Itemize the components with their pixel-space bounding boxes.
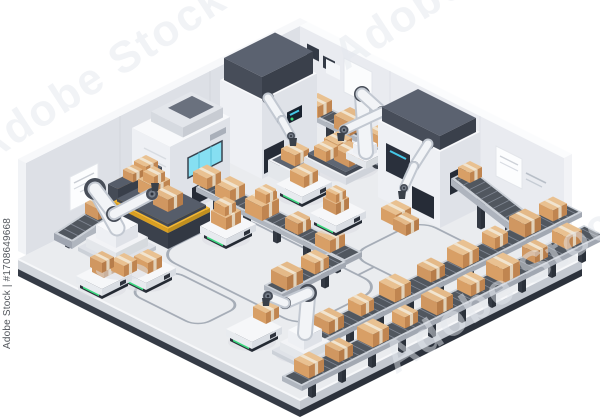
factory-illustration <box>0 0 600 420</box>
stock-image-preview: Adobe Stock Adobe Stock Adobe Stock Adob… <box>0 0 600 420</box>
